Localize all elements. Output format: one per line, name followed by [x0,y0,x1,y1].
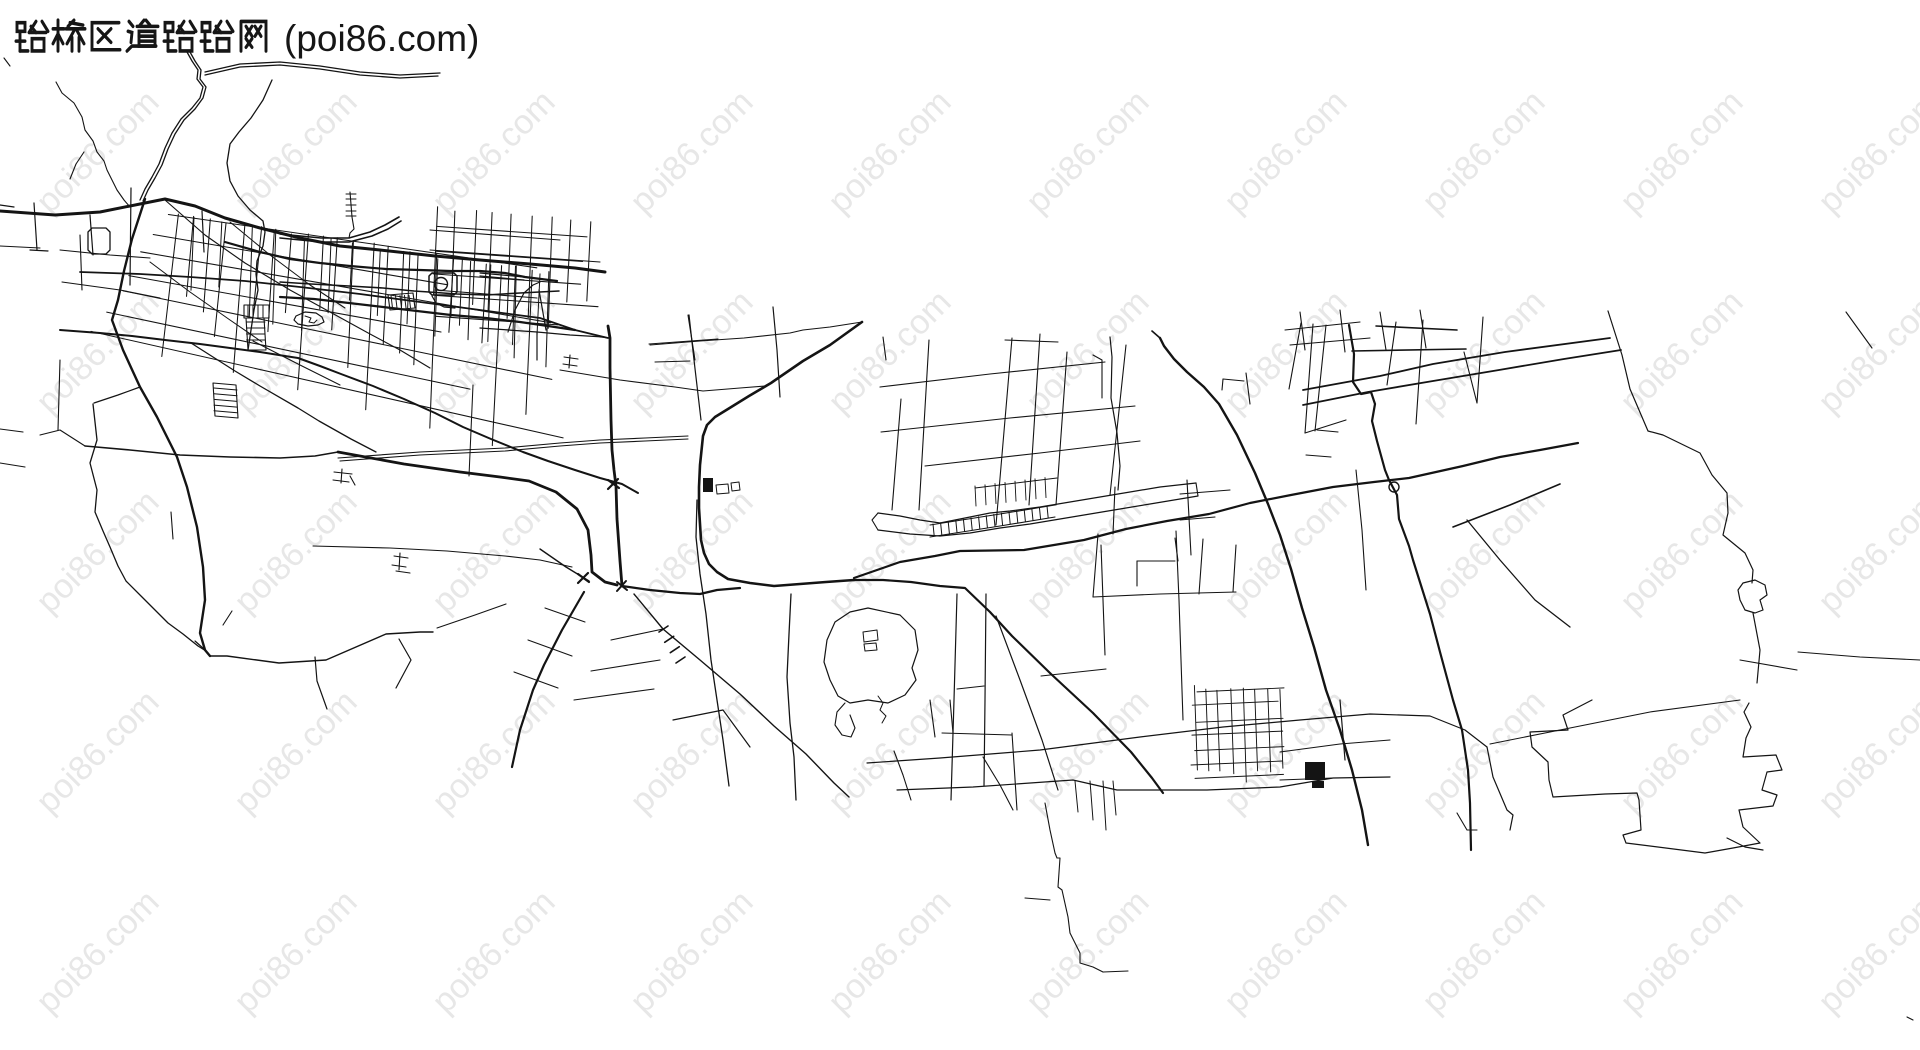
svg-text:(poi86.com): (poi86.com) [284,18,479,59]
